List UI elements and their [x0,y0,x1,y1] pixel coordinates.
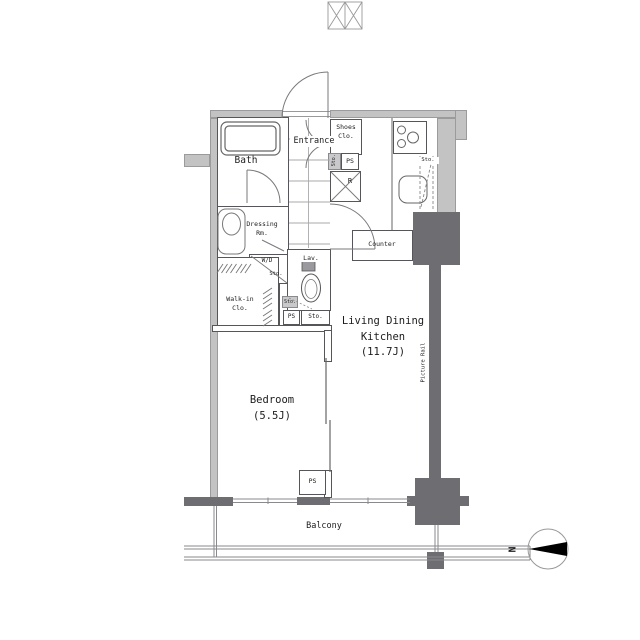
label-storage-mid: Sto. [301,313,330,321]
dressing-door-line [262,240,284,251]
label-washer-dryer-storage: Sto. [266,271,286,278]
floor-plan: Bath Entrance Shoes Clo. Sto. PS R Sto. … [0,0,640,640]
label-kitchen-storage: Sto. [417,157,439,164]
balcony-rails [184,506,530,560]
label-washer-dryer: W/D [256,257,278,265]
label-lavatory: Lav. [298,254,324,262]
stove-burners [398,126,419,148]
windows [233,498,410,505]
label-pipe-space-mid: PS [283,313,300,321]
label-lavatory-storage: Sto. [282,299,298,306]
label-pipe-space-balcony: PS [299,477,326,485]
duct-box [328,2,362,29]
compass [528,529,568,569]
kitchen-unit [392,118,433,230]
label-bedroom: Bedroom (5.5J) [232,393,312,424]
label-picture-rail: Picture Rail [420,333,427,393]
shoes-door-arc-lower [306,144,330,168]
label-shoes-storage: Sto. [331,149,338,171]
label-balcony: Balcony [294,521,354,532]
bath-door-arc [247,170,280,203]
label-shoes-closet: Shoes Clo. [330,123,362,141]
label-walk-in-closet: Walk-in Clo. [216,295,264,313]
label-bath: Bath [226,155,266,167]
label-refrigerator: R [344,177,356,186]
sliding-doors [326,358,330,472]
label-compass-north: N [507,543,520,557]
front-door-frame [282,112,330,117]
bathtub [221,122,280,155]
compass-arrow [529,542,567,556]
label-entry-pipe-space: PS [341,157,359,165]
label-dressing-room: Dressing Rm. [240,220,284,238]
label-counter: Counter [353,240,411,248]
